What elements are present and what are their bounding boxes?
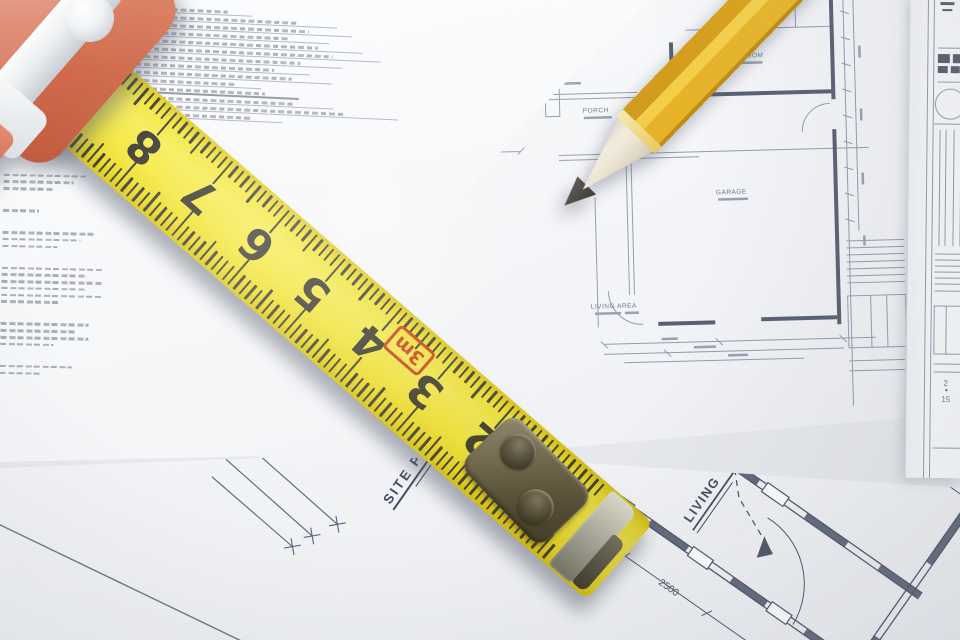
note-line bbox=[5, 131, 101, 136]
note-line bbox=[3, 209, 39, 212]
note-paragraph-gap bbox=[4, 158, 108, 171]
note-line bbox=[2, 238, 80, 242]
spec-table bbox=[98, 2, 433, 137]
room-label-living-area: LIVING AREA bbox=[591, 302, 637, 310]
note-line bbox=[4, 173, 86, 177]
route-arrowhead bbox=[752, 536, 779, 564]
note-line bbox=[2, 273, 87, 277]
right-margin-sheet: 2 15 bbox=[905, 0, 960, 478]
scale-top: 2 bbox=[943, 379, 948, 388]
note-line bbox=[4, 138, 86, 142]
photo-tape-measure-on-blueprints: SITE PL 117' bbox=[0, 0, 960, 640]
note-paragraph-gap bbox=[1, 307, 105, 320]
scale-bottom: 15 bbox=[941, 395, 951, 404]
note-line bbox=[2, 244, 57, 248]
note-line bbox=[0, 329, 75, 333]
note-line bbox=[4, 151, 62, 155]
note-line bbox=[2, 266, 102, 271]
note-line bbox=[1, 287, 86, 291]
note-line bbox=[0, 365, 72, 369]
note-line bbox=[3, 187, 52, 191]
boundary-line bbox=[0, 522, 256, 640]
note-line bbox=[1, 300, 61, 304]
note-line bbox=[0, 343, 53, 347]
living-tick-label: 10' bbox=[545, 522, 560, 538]
note-line bbox=[4, 180, 74, 184]
right-margin-drawing: 2 15 bbox=[905, 0, 960, 478]
note-line bbox=[3, 231, 95, 236]
note-line bbox=[1, 294, 101, 299]
room-label-bedroom: BEDROOM bbox=[726, 52, 763, 60]
note-paragraph-gap bbox=[3, 216, 107, 229]
note-paragraph-gap bbox=[0, 349, 104, 362]
note-paragraph-gap bbox=[3, 194, 107, 207]
note-paragraph-gap bbox=[0, 378, 103, 391]
note-line bbox=[0, 336, 88, 340]
room-label-porch: PORCH bbox=[583, 107, 609, 115]
spec-notes bbox=[0, 127, 109, 391]
dim-2500a: 2500 bbox=[656, 577, 681, 599]
room-label-garage: GARAGE bbox=[716, 189, 747, 197]
note-line bbox=[1, 280, 101, 285]
note-line bbox=[4, 145, 100, 150]
note-line bbox=[1, 322, 89, 326]
note-line bbox=[0, 371, 43, 374]
note-paragraph-gap bbox=[2, 251, 106, 264]
